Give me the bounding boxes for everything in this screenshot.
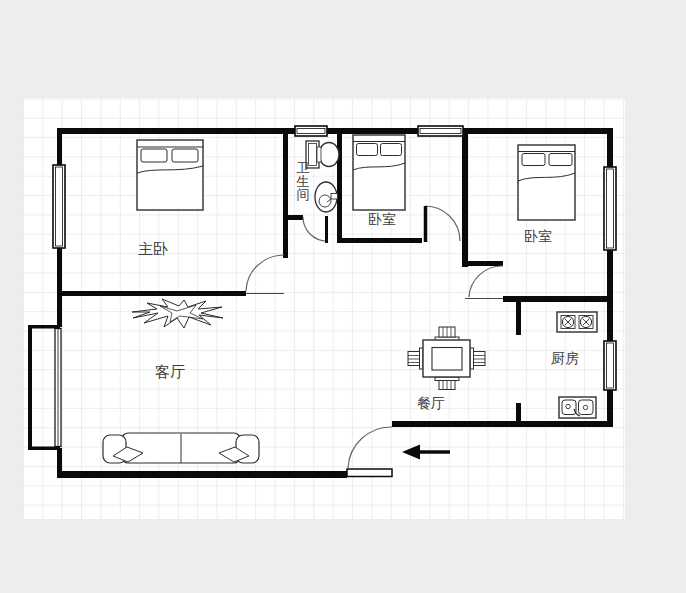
dining-table [423, 340, 470, 377]
bed-bedroom-2 [353, 135, 405, 210]
window-top-bathroom [295, 126, 327, 136]
wall-segment [283, 215, 303, 220]
window-right-bedroom-3 [604, 167, 616, 250]
wall-segment [337, 128, 342, 243]
room-label-bedroom-2: 卧室 [368, 211, 396, 227]
window-right-kitchen [604, 341, 616, 390]
room-label-living-room: 客厅 [155, 363, 185, 381]
wall-segment [57, 128, 62, 165]
wall-segment [463, 128, 613, 134]
wall-segment [607, 250, 613, 341]
kitchen-sink [559, 397, 596, 418]
room-label-kitchen: 厨房 [551, 350, 579, 366]
wall-segment [57, 248, 62, 327]
wall-segment [57, 291, 246, 296]
wall-segment [462, 128, 468, 267]
bed-master [137, 140, 203, 210]
wall-segment [57, 128, 295, 134]
room-label-bathroom: 卫生间 [297, 160, 310, 202]
chair-right [470, 348, 485, 369]
wall-segment [337, 238, 422, 243]
wall-segment [57, 471, 347, 478]
bed-bedroom-3 [518, 145, 575, 220]
sofa [103, 433, 259, 463]
wall-segment [607, 128, 613, 167]
floorplan-viewport[interactable]: 主卧 卫生间 卧室 卧室 客厅 餐厅 厨房 [0, 0, 686, 593]
chair-top [435, 327, 459, 341]
wall-segment [516, 296, 521, 335]
stove [557, 312, 597, 332]
window-top-bedroom-2 [418, 126, 463, 136]
chair-left [408, 348, 423, 369]
room-label-dining-room: 餐厅 [417, 395, 445, 411]
toilet [306, 141, 339, 168]
wall-segment [392, 421, 613, 427]
wall-segment [283, 128, 288, 258]
wall-segment [516, 403, 521, 427]
chair-bottom [435, 377, 459, 390]
wall-segment [462, 261, 503, 266]
room-label-master-bedroom: 主卧 [138, 240, 168, 258]
room-label-bedroom-3: 卧室 [524, 228, 552, 244]
wash-basin [315, 182, 338, 212]
window-left-master [53, 165, 65, 248]
